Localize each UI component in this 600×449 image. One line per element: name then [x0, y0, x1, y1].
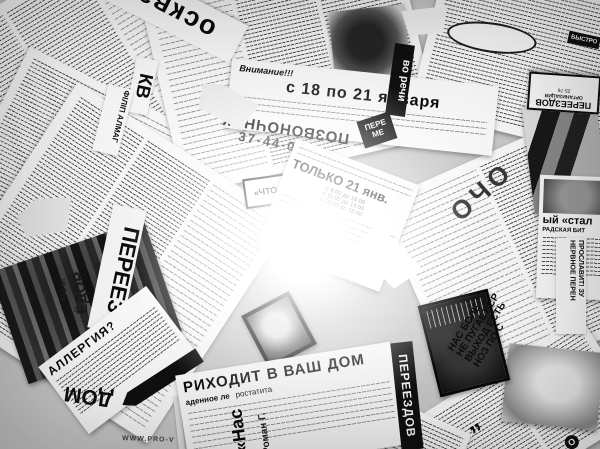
photo-article-thumb [543, 179, 600, 215]
headline-stal: ый «стал [542, 215, 600, 228]
line-nervnoe: НЕРВНОЕ ПЕРЕН [568, 240, 575, 301]
scrap-prihodit: РИХОДИТ В ВАШ ДОМ аденное ле ростатита [175, 342, 406, 449]
newspaper-collage-photo: „ О 08-48-58 осква в КВ ФІЛІП АЛМАГ Вним… [0, 0, 600, 449]
line-proslavit: ПРОСЛАВИТ! ЗУ [577, 240, 584, 297]
column-nervnoe: ПРОСЛАВИТ! ЗУ НЕРВНОЕ ПЕРЕН [556, 238, 586, 334]
photo-sleeping-face [501, 343, 600, 431]
ad-pereezdov-top: ПЕРЕЕЗДОВ ОРГАНИЗАЦИЯ 25-76 [527, 72, 600, 115]
subhead-bitva: РАДСКАЯ БИТ [542, 227, 600, 235]
website-url: WWW.PRO-V [122, 435, 175, 444]
label-acii: АЦИИ [57, 252, 68, 302]
